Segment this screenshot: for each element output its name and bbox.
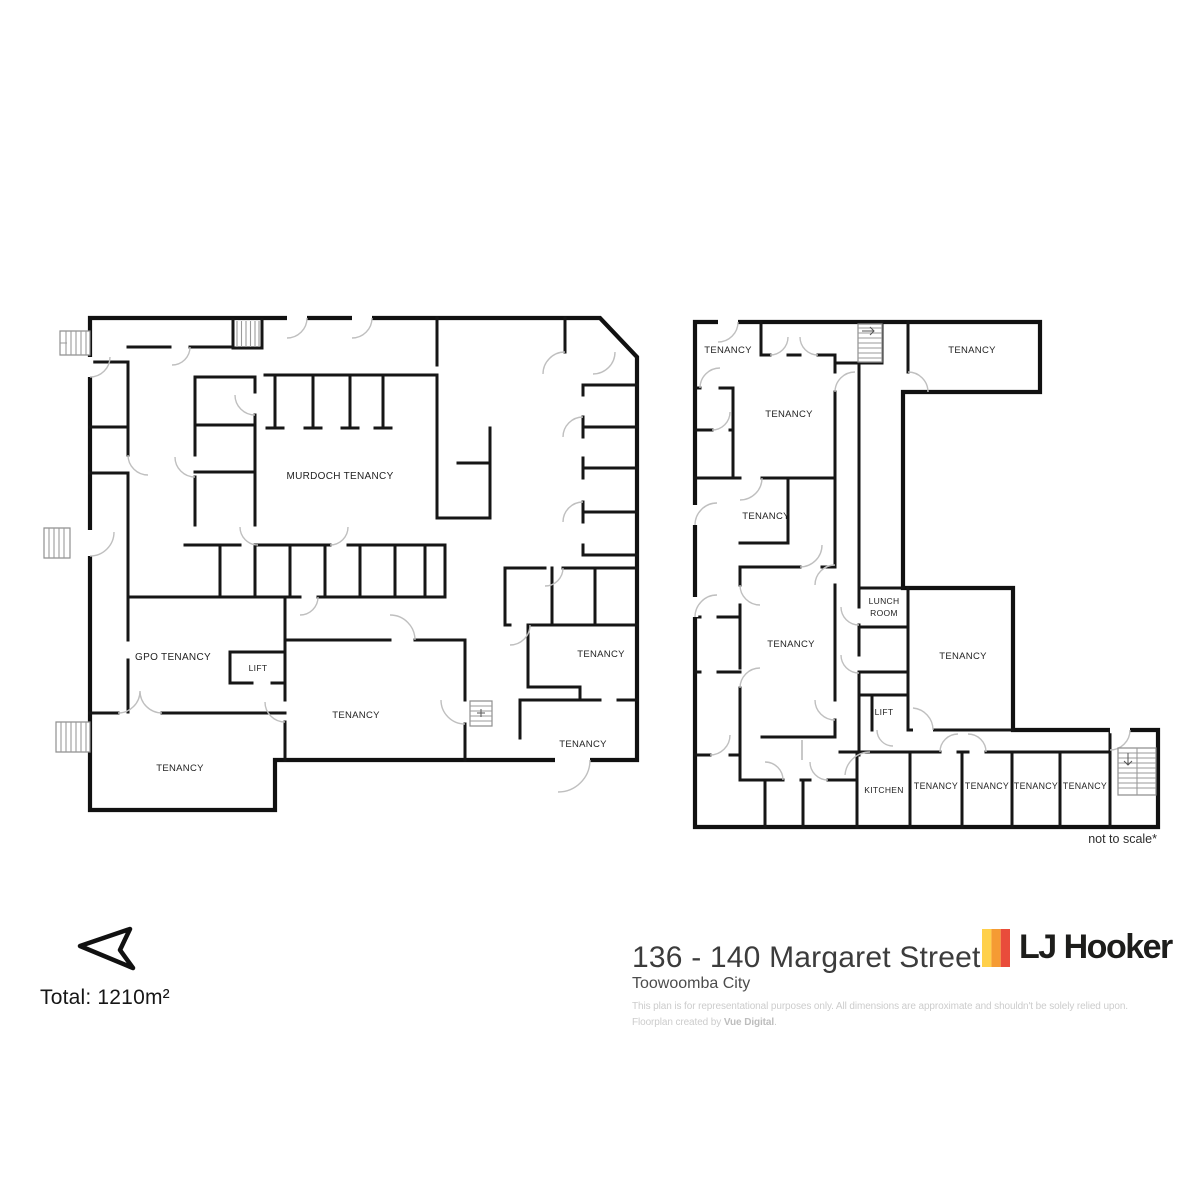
left-floor-plan: MURDOCH TENANCY GPO TENANCY LIFT TENANCY… xyxy=(44,318,637,810)
room-label: MURDOCH TENANCY xyxy=(286,471,393,482)
logo-stripe-yellow xyxy=(982,929,991,967)
room-label: TENANCY xyxy=(914,781,958,791)
floorplan-page: MURDOCH TENANCY GPO TENANCY LIFT TENANCY… xyxy=(0,0,1200,1200)
logo-wordmark: LJ Hooker xyxy=(1019,928,1172,967)
room-label: LIFT xyxy=(875,707,894,717)
room-label: TENANCY xyxy=(742,511,790,522)
room-label: TENANCY xyxy=(156,763,204,774)
floorplan-canvas: MURDOCH TENANCY GPO TENANCY LIFT TENANCY… xyxy=(0,0,1200,1200)
room-label: LIFT xyxy=(249,663,268,673)
scale-note: not to scale* xyxy=(1088,832,1157,846)
room-label: TENANCY xyxy=(577,649,625,660)
logo-stripe-red xyxy=(1001,929,1010,967)
room-label: KITCHEN xyxy=(864,785,903,795)
credit-suffix: . xyxy=(774,1017,777,1028)
disclaimer-text: This plan is for representational purpos… xyxy=(632,1001,1128,1012)
room-label: TENANCY xyxy=(1014,781,1058,791)
room-label: TENANCY xyxy=(332,710,380,721)
stairs-icon xyxy=(237,321,259,347)
room-label: TENANCY xyxy=(939,651,987,662)
stairs-icon xyxy=(858,324,882,362)
address-title: 136 - 140 Margaret Street xyxy=(632,941,981,975)
lj-hooker-logo: LJ Hooker xyxy=(982,928,1172,967)
right-floor-plan: TENANCY TENANCY TENANCY TENANCY TENANCY … xyxy=(695,322,1158,827)
stairs-icon xyxy=(56,722,90,752)
room-label: ROOM xyxy=(870,608,898,618)
door-openings xyxy=(90,318,590,760)
room-label: LUNCH xyxy=(869,596,900,606)
floorplan-credit: Floorplan created by Vue Digital. xyxy=(632,1017,777,1028)
credit-brand: Vue Digital xyxy=(724,1017,774,1028)
stairs-icon xyxy=(44,528,70,558)
stairs-icon xyxy=(1118,748,1156,795)
room-label: GPO TENANCY xyxy=(135,652,211,663)
stairs-icon xyxy=(470,701,492,726)
address-subtitle: Toowoomba City xyxy=(632,975,750,993)
outer-walls xyxy=(90,318,637,810)
room-label: TENANCY xyxy=(559,739,607,750)
room-label: TENANCY xyxy=(948,345,996,356)
logo-stripe-orange xyxy=(991,929,1000,967)
stairs-icon xyxy=(60,331,90,355)
door-openings xyxy=(695,322,1130,730)
room-label: TENANCY xyxy=(767,639,815,650)
walls xyxy=(90,318,637,760)
room-label: TENANCY xyxy=(1063,781,1107,791)
room-label: TENANCY xyxy=(965,781,1009,791)
total-area-label: Total: 1210m² xyxy=(40,986,170,1010)
room-label: TENANCY xyxy=(765,409,813,420)
room-label: TENANCY xyxy=(704,345,752,356)
north-arrow-icon xyxy=(68,922,148,982)
logo-stripe-block xyxy=(982,929,1010,967)
credit-prefix: Floorplan created by xyxy=(632,1017,724,1028)
